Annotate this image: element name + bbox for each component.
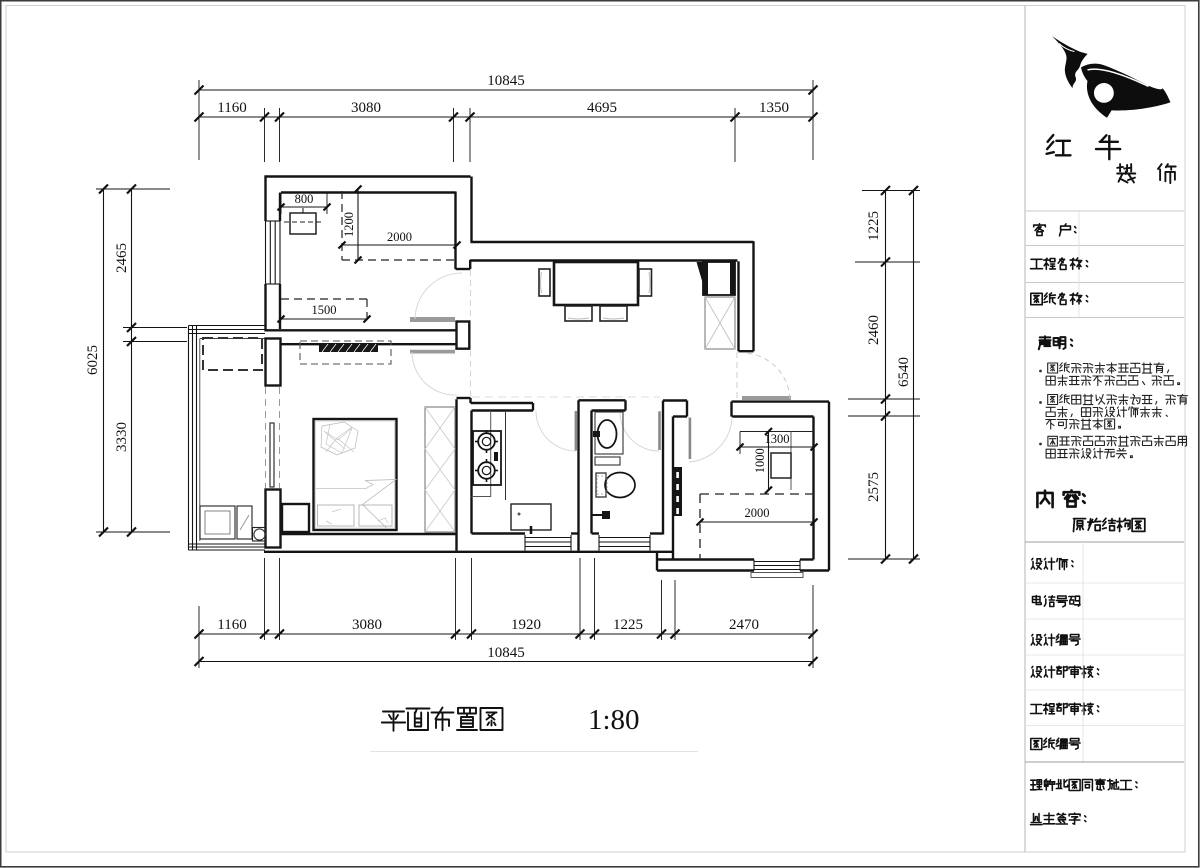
svg-text:3330: 3330 — [114, 422, 130, 452]
svg-text:800: 800 — [295, 192, 314, 206]
svg-text:1225: 1225 — [613, 617, 643, 633]
svg-text:1200: 1200 — [342, 212, 356, 237]
svg-text:10845: 10845 — [487, 645, 525, 661]
svg-text:2465: 2465 — [114, 243, 130, 273]
svg-text:6025: 6025 — [85, 345, 101, 375]
svg-text:2460: 2460 — [866, 315, 882, 345]
svg-text:3080: 3080 — [352, 617, 382, 633]
svg-text:6540: 6540 — [896, 357, 912, 387]
svg-text:1160: 1160 — [217, 100, 246, 116]
svg-text:1500: 1500 — [312, 303, 337, 317]
svg-text:1160: 1160 — [217, 617, 246, 633]
svg-text:1350: 1350 — [759, 100, 789, 116]
svg-text:4695: 4695 — [587, 100, 617, 116]
svg-text:2575: 2575 — [866, 472, 882, 502]
svg-text:1920: 1920 — [511, 617, 541, 633]
svg-text:2000: 2000 — [387, 230, 412, 244]
svg-text:1:80: 1:80 — [588, 704, 640, 736]
svg-text:2470: 2470 — [729, 617, 759, 633]
svg-text:1225: 1225 — [866, 211, 882, 241]
svg-text:10845: 10845 — [487, 73, 525, 89]
svg-text:3080: 3080 — [351, 100, 381, 116]
svg-text:1000: 1000 — [753, 448, 767, 473]
svg-text:2000: 2000 — [745, 506, 770, 520]
